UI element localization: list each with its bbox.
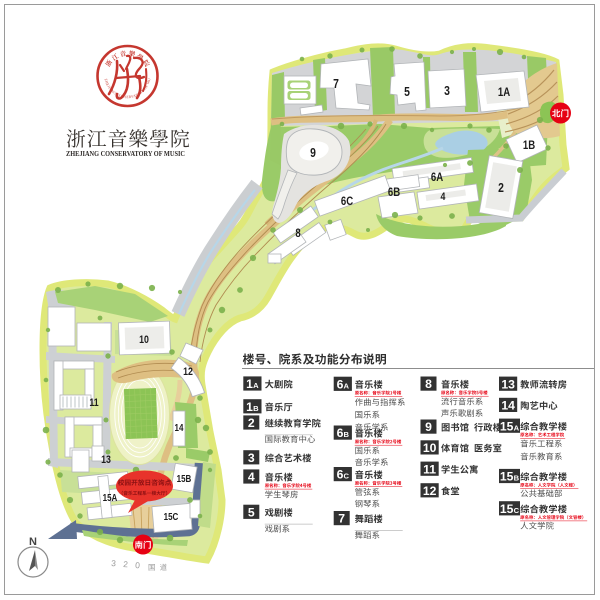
svg-text:1A: 1A — [498, 86, 510, 99]
svg-text:9: 9 — [310, 146, 316, 160]
svg-text:8: 8 — [295, 227, 300, 240]
svg-text:9: 9 — [425, 420, 432, 434]
svg-text:14: 14 — [175, 422, 184, 433]
svg-text:5: 5 — [248, 505, 255, 519]
svg-text:1B: 1B — [523, 139, 535, 152]
svg-text:7: 7 — [338, 512, 345, 526]
svg-text:10: 10 — [139, 334, 149, 346]
svg-text:N: N — [29, 536, 37, 548]
svg-text:15A: 15A — [103, 492, 118, 503]
svg-text:6C: 6C — [341, 195, 353, 208]
svg-text:5: 5 — [404, 85, 410, 99]
svg-text:3: 3 — [444, 84, 450, 98]
svg-text:6A: 6A — [431, 171, 443, 184]
svg-text:2: 2 — [498, 181, 504, 195]
svg-text:8: 8 — [425, 377, 432, 391]
svg-text:12: 12 — [423, 484, 437, 498]
svg-text:4: 4 — [441, 191, 446, 203]
svg-text:ZHEJIANG CONSERVATORY OF MUSIC: ZHEJIANG CONSERVATORY OF MUSIC — [66, 149, 185, 158]
svg-text:15B: 15B — [177, 473, 192, 484]
svg-text:2: 2 — [248, 416, 255, 430]
svg-text:14: 14 — [501, 399, 515, 413]
svg-text:12: 12 — [183, 366, 193, 378]
svg-text:4: 4 — [248, 470, 255, 484]
svg-text:15C: 15C — [164, 511, 179, 522]
svg-text:6B: 6B — [388, 186, 400, 199]
svg-text:11: 11 — [423, 462, 436, 476]
svg-text:7: 7 — [333, 77, 339, 91]
svg-text:13: 13 — [501, 377, 515, 391]
svg-text:3: 3 — [248, 451, 255, 465]
svg-text:11: 11 — [89, 397, 99, 409]
svg-text:13: 13 — [101, 454, 111, 466]
svg-text:10: 10 — [423, 441, 437, 455]
